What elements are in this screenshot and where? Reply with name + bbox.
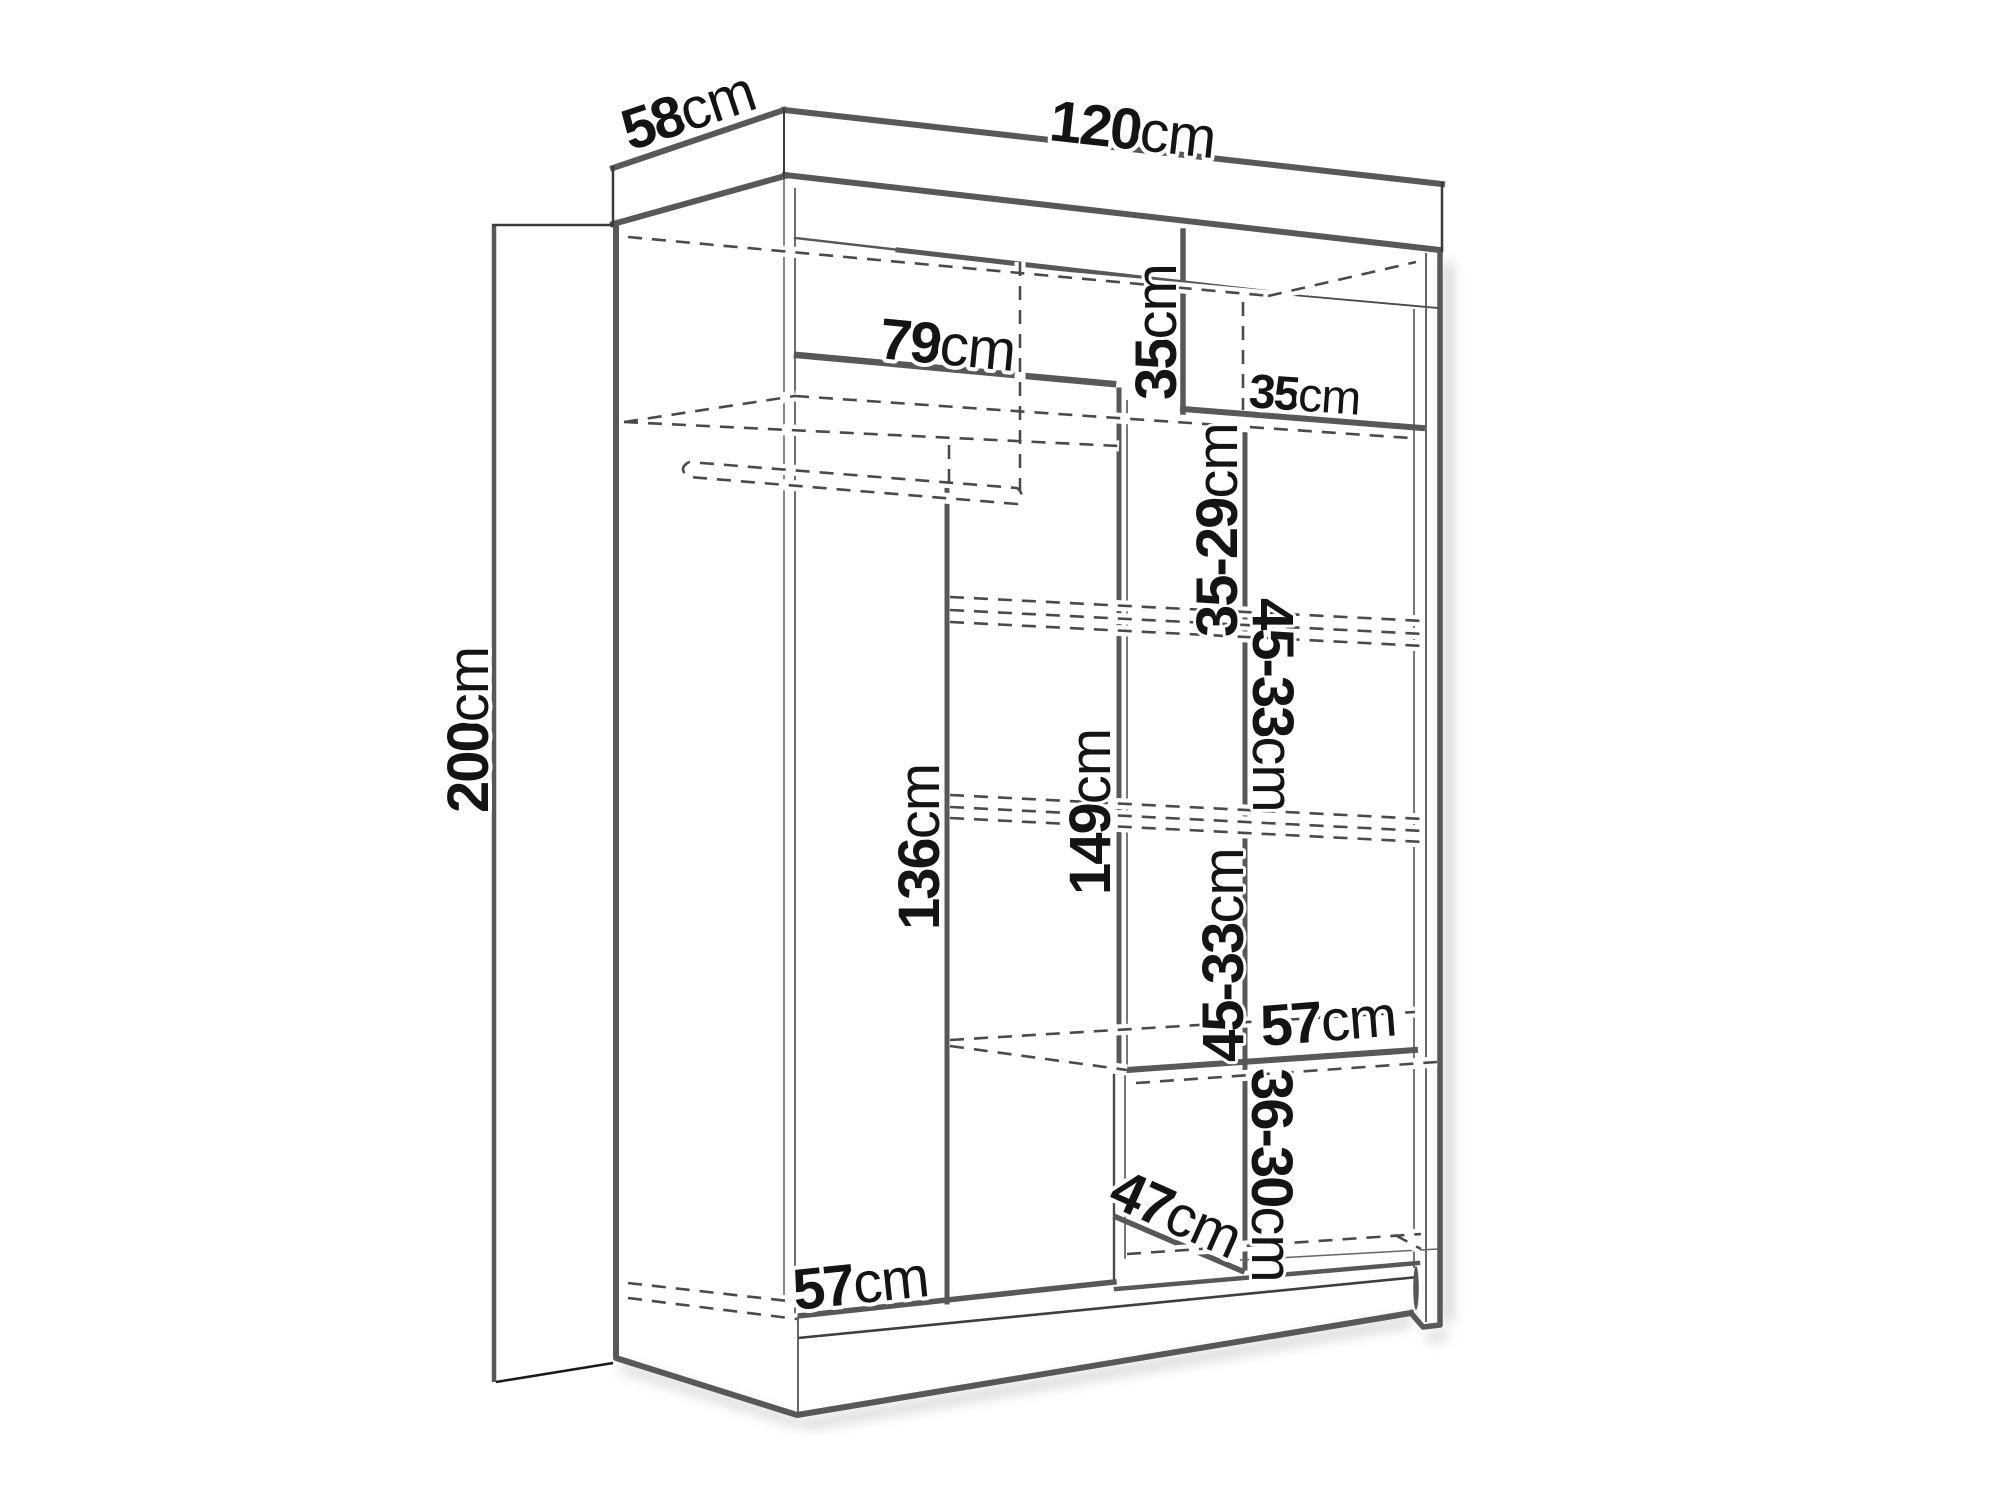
svg-text:120cm: 120cm <box>1047 88 1219 171</box>
svg-text:149cm: 149cm <box>1058 729 1123 895</box>
svg-text:35cm: 35cm <box>1124 264 1189 400</box>
svg-text:57cm: 57cm <box>1258 984 1399 1059</box>
svg-text:45-33cm: 45-33cm <box>1240 598 1305 812</box>
svg-text:200cm: 200cm <box>436 647 501 813</box>
svg-text:45-33cm: 45-33cm <box>1191 848 1256 1062</box>
svg-text:35cm: 35cm <box>1247 365 1362 426</box>
svg-text:79cm: 79cm <box>877 306 1018 384</box>
svg-text:36-30cm: 36-30cm <box>1239 1068 1304 1282</box>
svg-text:58cm: 58cm <box>614 59 763 164</box>
svg-text:57cm: 57cm <box>790 1244 932 1323</box>
svg-text:136cm: 136cm <box>887 764 952 930</box>
